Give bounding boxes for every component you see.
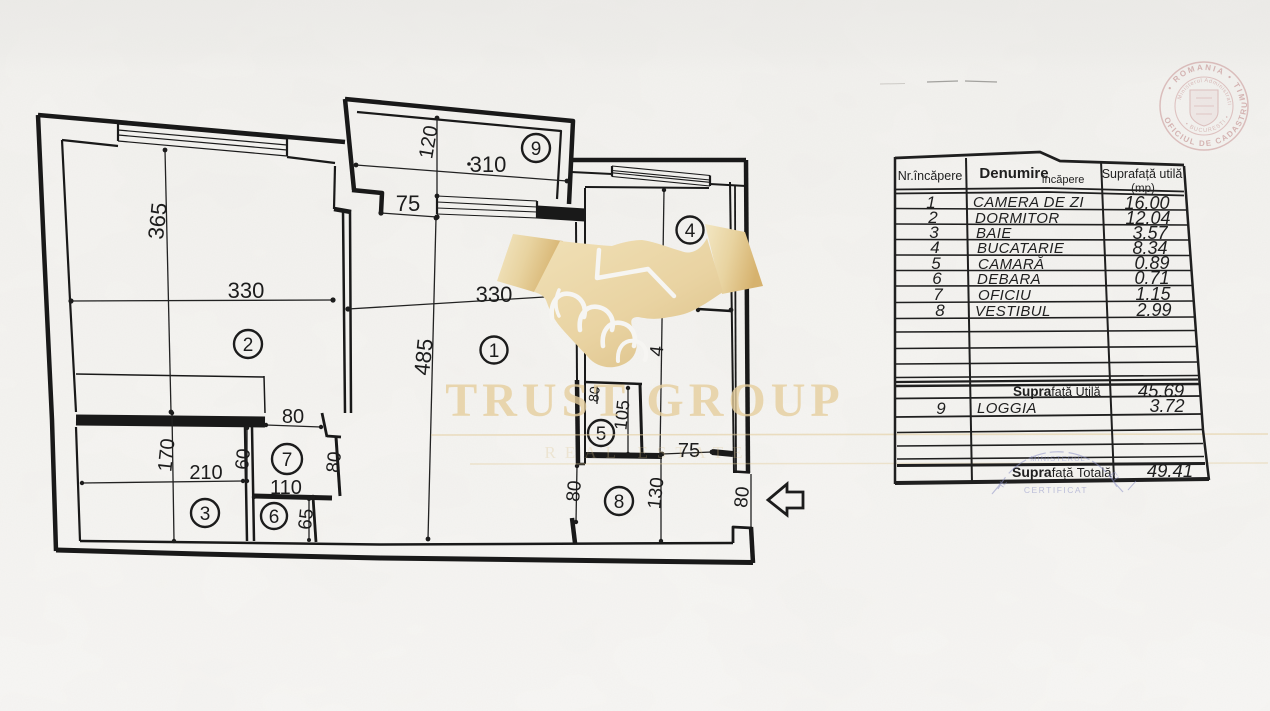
svg-text:310: 310 <box>470 152 507 177</box>
svg-text:BUCATARIE: BUCATARIE <box>977 240 1065 257</box>
svg-text:110: 110 <box>270 477 302 499</box>
svg-text:CERTIFICAT: CERTIFICAT <box>1024 485 1088 495</box>
svg-text:485: 485 <box>409 337 438 376</box>
svg-text:2.99: 2.99 <box>1135 300 1171 320</box>
svg-text:170: 170 <box>154 437 179 472</box>
svg-text:365: 365 <box>143 201 172 240</box>
svg-text:49.41: 49.41 <box>1147 460 1193 481</box>
svg-text:OFICIU: OFICIU <box>978 287 1031 304</box>
svg-text:TRUST GROUP: TRUST GROUP <box>445 374 845 427</box>
svg-text:60: 60 <box>232 448 255 471</box>
svg-text:130: 130 <box>644 476 668 510</box>
svg-text:3.72: 3.72 <box>1149 396 1184 416</box>
svg-text:REAL ESTATE: REAL ESTATE <box>544 443 751 462</box>
svg-text:330: 330 <box>228 278 265 303</box>
svg-text:Denumire: Denumire <box>979 165 1048 182</box>
svg-text:9: 9 <box>936 399 946 418</box>
svg-text:8: 8 <box>614 492 625 513</box>
svg-text:80: 80 <box>323 451 346 474</box>
svg-text:75: 75 <box>396 191 420 216</box>
svg-text:VESTIBUL: VESTIBUL <box>975 303 1051 320</box>
svg-text:CAMERA DE ZI: CAMERA DE ZI <box>973 194 1084 211</box>
svg-text:9: 9 <box>531 139 542 160</box>
svg-text:MINISTERUL: MINISTERUL <box>1030 454 1085 463</box>
svg-text:80: 80 <box>731 486 754 509</box>
svg-text:Suprafață utilă: Suprafață utilă <box>1102 167 1183 181</box>
svg-text:7: 7 <box>282 450 293 471</box>
svg-text:4: 4 <box>685 221 696 242</box>
svg-text:65: 65 <box>295 508 318 531</box>
svg-text:2: 2 <box>243 335 254 356</box>
svg-text:DEBARA: DEBARA <box>977 271 1041 288</box>
svg-text:3: 3 <box>200 504 211 525</box>
svg-text:Suprafață Totală: Suprafață Totală <box>1012 464 1112 480</box>
svg-text:6: 6 <box>269 507 280 528</box>
svg-text:1: 1 <box>489 341 500 362</box>
svg-text:Nr.încăpere: Nr.încăpere <box>898 169 963 183</box>
svg-text:210: 210 <box>189 462 222 484</box>
svg-text:LOGGIA: LOGGIA <box>977 400 1037 417</box>
svg-text:330: 330 <box>476 282 513 307</box>
svg-text:80: 80 <box>563 480 586 503</box>
svg-text:8: 8 <box>935 301 945 320</box>
svg-text:încăpere: încăpere <box>1041 174 1085 186</box>
svg-text:Suprafață Utilă: Suprafață Utilă <box>1013 384 1101 399</box>
svg-text:80: 80 <box>282 406 304 428</box>
